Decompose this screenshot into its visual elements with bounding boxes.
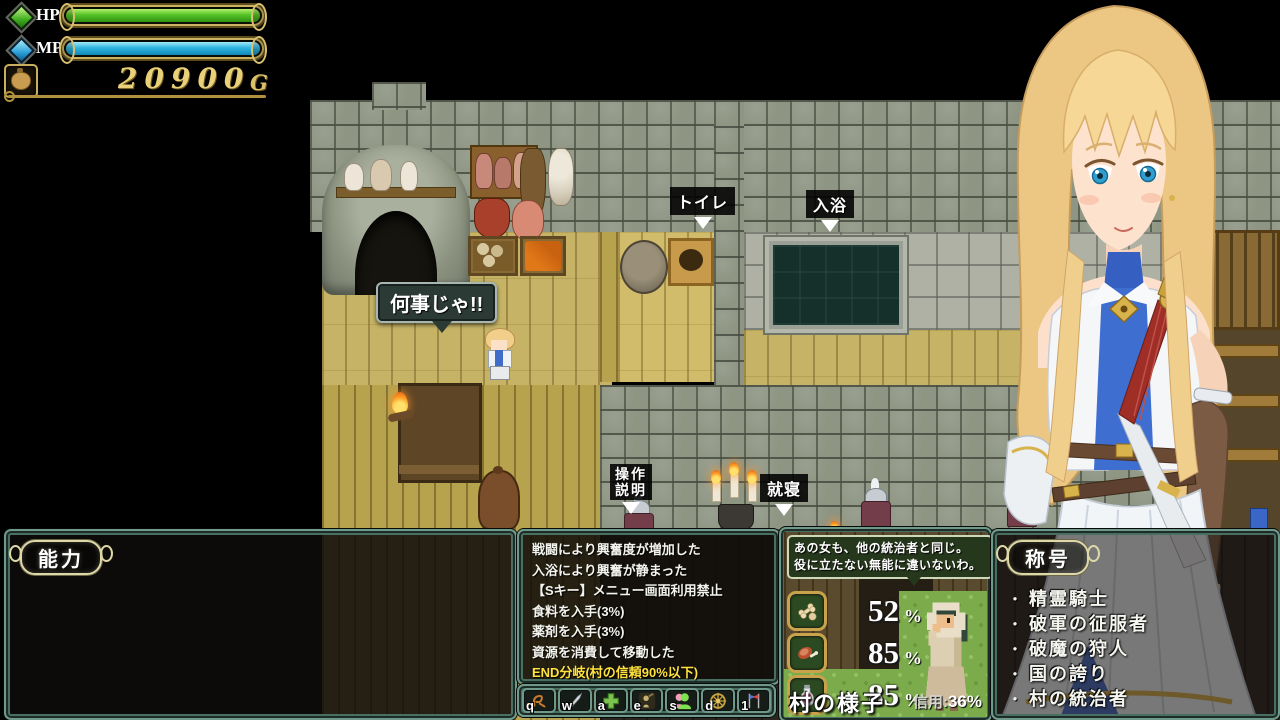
title-text: 国の誇り <box>1029 660 1109 686</box>
potatoes <box>473 241 513 271</box>
village-stat-meat: 85 % <box>787 633 922 673</box>
bucket-sprite <box>620 240 668 294</box>
ability-header-ornament: 能力 <box>20 540 102 575</box>
titles-title: 称号 <box>1025 549 1071 571</box>
down-arrow-icon <box>821 220 839 241</box>
log-line: 【Sキー】メニュー画面利用禁止 <box>519 581 778 602</box>
bath-label-text: 入浴 <box>806 190 854 218</box>
mp-bar-fill <box>66 42 260 55</box>
log-line: 食料を入手(3%) <box>519 602 778 623</box>
chimney <box>372 82 426 110</box>
hud: HP MP 20900 G <box>0 0 290 105</box>
hotkey-letter: s <box>669 698 676 713</box>
title-text: 精霊騎士 <box>1029 585 1109 611</box>
board-ledge <box>399 465 479 474</box>
toilet-label-text: トイレ <box>670 187 735 215</box>
gold-amount: 20900 <box>118 62 250 95</box>
titles-list: ・精霊騎士 ・破軍の征服者 ・破魔の狩人 ・国の誇り ・村の統治者 <box>993 585 1278 710</box>
hero-face <box>491 340 507 350</box>
hp-bar <box>64 7 262 24</box>
hero-legs <box>490 366 510 380</box>
flame-icon <box>747 470 757 484</box>
hanging-garlic <box>548 148 574 206</box>
map-label-sleep[interactable]: 就寝 <box>760 474 808 525</box>
bullet: ・ <box>1007 611 1023 635</box>
gold-unit: G <box>250 70 268 95</box>
hp-bar-fill <box>66 9 260 22</box>
hotbar-slot-s[interactable]: s <box>665 688 699 713</box>
map-speech-bubble: 何事じゃ!! <box>376 282 497 323</box>
bath-water <box>773 245 899 325</box>
bar-cap <box>59 3 75 31</box>
log-panel: 戦闘により興奮度が増加した 入浴により興奮が静まった 【Sキー】メニュー画面利用… <box>517 529 780 685</box>
titles-header-ornament: 称号 <box>1007 540 1089 575</box>
bullet: ・ <box>1007 636 1023 660</box>
log-line: 戦闘により興奮度が増加した <box>519 540 778 561</box>
potato-crate <box>468 236 518 276</box>
room-divider <box>600 232 618 382</box>
log-line-highlight: END分岐(村の信頼90%以下) <box>519 663 778 684</box>
hp-gem-icon <box>8 4 35 31</box>
hotbar-slot-q[interactable]: q <box>522 688 556 713</box>
trust-indicator: 信用:36% <box>913 691 982 712</box>
down-arrow-icon <box>622 502 640 523</box>
meat-value: 85 <box>827 635 899 671</box>
money-bag-icon <box>11 72 31 90</box>
log-body: 戦闘により興奮度が増加した 入浴により興奮が静まった 【Sキー】メニュー画面利用… <box>519 531 778 684</box>
hp-label: HP <box>36 5 60 25</box>
log-line: 入浴により興奮が静まった <box>519 561 778 582</box>
hotbar-slot-e[interactable]: e <box>630 688 664 713</box>
controls-line1: 操作 <box>615 466 647 482</box>
bar-cap <box>251 3 267 31</box>
hero-sprite <box>482 328 516 380</box>
toilet-hole <box>679 249 703 271</box>
title-text: 村の統治者 <box>1029 685 1129 711</box>
urn-sprite <box>478 470 520 530</box>
hotkey-letter: e <box>634 698 641 713</box>
speech-text: 何事じゃ!! <box>390 294 483 316</box>
hanging-ham <box>512 200 544 240</box>
candelabra-stand <box>718 504 754 530</box>
urn-lid <box>493 466 503 474</box>
down-arrow-icon <box>694 217 712 238</box>
title-item: ・精霊騎士 <box>993 585 1278 610</box>
torch-bracket <box>387 409 414 422</box>
hotkey-letter: 1 <box>741 698 748 713</box>
meat-icon <box>787 633 827 673</box>
flame-icon <box>729 462 739 476</box>
map-label-toilet[interactable]: トイレ <box>670 187 735 238</box>
trust-value: 36% <box>948 692 982 711</box>
villager-bubble-line2: 役に立たない無能に違いないわ。 <box>794 557 986 574</box>
title-item: ・国の誇り <box>993 660 1278 685</box>
wall-torch <box>384 392 418 442</box>
bubble-tail <box>907 577 921 593</box>
jar-icon <box>494 157 512 189</box>
jar-icon <box>475 153 493 189</box>
speech-tail <box>432 321 452 343</box>
candle <box>748 482 757 502</box>
bar-cap <box>251 36 267 64</box>
mp-gem-icon <box>8 37 35 64</box>
trust-label: 信用 <box>913 694 943 711</box>
map-label-bath[interactable]: 入浴 <box>806 190 854 241</box>
sleep-label-text: 就寝 <box>760 474 808 502</box>
food-value: 52 <box>827 593 899 629</box>
jug-icon <box>400 161 418 191</box>
villager-speech-bubble: あの女も、他の統治者と同じ。 役に立たない無能に違いないわ。 <box>787 535 992 579</box>
log-line: 資源を消費して移動した <box>519 643 778 664</box>
hotkey-letter: a <box>598 698 605 713</box>
hotbar: q w a e s d 1 <box>517 684 776 717</box>
bullet: ・ <box>1007 661 1023 685</box>
bullet: ・ <box>1007 586 1023 610</box>
title-text: 破軍の征服者 <box>1029 610 1149 636</box>
village-panel: あの女も、他の統治者と同じ。 役に立たない無能に違いないわ。 52 % 85 %… <box>779 527 992 720</box>
carrot-crate <box>520 236 566 276</box>
controls-label-text: 操作説明 <box>610 464 652 500</box>
candle <box>730 474 739 498</box>
controls-line2: 説明 <box>615 482 647 498</box>
jug-icon <box>344 163 364 191</box>
hotbar-slot-w[interactable]: w <box>558 688 592 713</box>
log-line: 薬剤を入手(3%) <box>519 622 778 643</box>
flame-icon <box>711 470 721 484</box>
bath-pool <box>765 237 907 333</box>
gold-flourish <box>8 95 266 98</box>
hotbar-slot-a[interactable]: a <box>594 688 628 713</box>
toilet-sprite <box>668 238 714 286</box>
hotbar-slot-d[interactable]: d <box>701 688 735 713</box>
titles-panel: 称号 ・精霊騎士 ・破軍の征服者 ・破魔の狩人 ・国の誇り ・村の統治者 <box>991 529 1280 720</box>
carrots <box>525 241 561 271</box>
villager-bubble-line1: あの女も、他の統治者と同じ。 <box>794 540 986 557</box>
ability-title: 能力 <box>38 549 84 571</box>
title-item: ・破軍の征服者 <box>993 610 1278 635</box>
hotkey-letter: q <box>526 698 534 713</box>
hotbar-slot-1[interactable]: 1 <box>737 688 771 713</box>
candle <box>712 482 721 502</box>
down-arrow-icon <box>775 504 793 525</box>
jug-icon <box>370 159 392 191</box>
furnace-sprite <box>322 145 470 295</box>
mp-bar <box>64 40 262 57</box>
title-text: 破魔の狩人 <box>1029 635 1129 661</box>
village-footer-label: 村の様子 <box>789 686 885 718</box>
food-icon <box>787 591 827 631</box>
hotkey-letter: w <box>562 698 572 713</box>
bullet: ・ <box>1007 686 1023 710</box>
village-stat-food: 52 % <box>787 591 922 631</box>
bar-cap <box>59 36 75 64</box>
ability-panel: 能力 <box>4 529 517 720</box>
hero-tunic <box>495 350 503 366</box>
map-label-controls[interactable]: 操作説明 <box>610 464 652 523</box>
title-item: ・破魔の狩人 <box>993 635 1278 660</box>
candelabra-sprite <box>708 460 762 530</box>
title-item: ・村の統治者 <box>993 685 1278 710</box>
hotkey-letter: d <box>705 698 713 713</box>
game-screen: 何事じゃ!! <box>0 0 1280 720</box>
hanging-meat <box>474 198 510 238</box>
